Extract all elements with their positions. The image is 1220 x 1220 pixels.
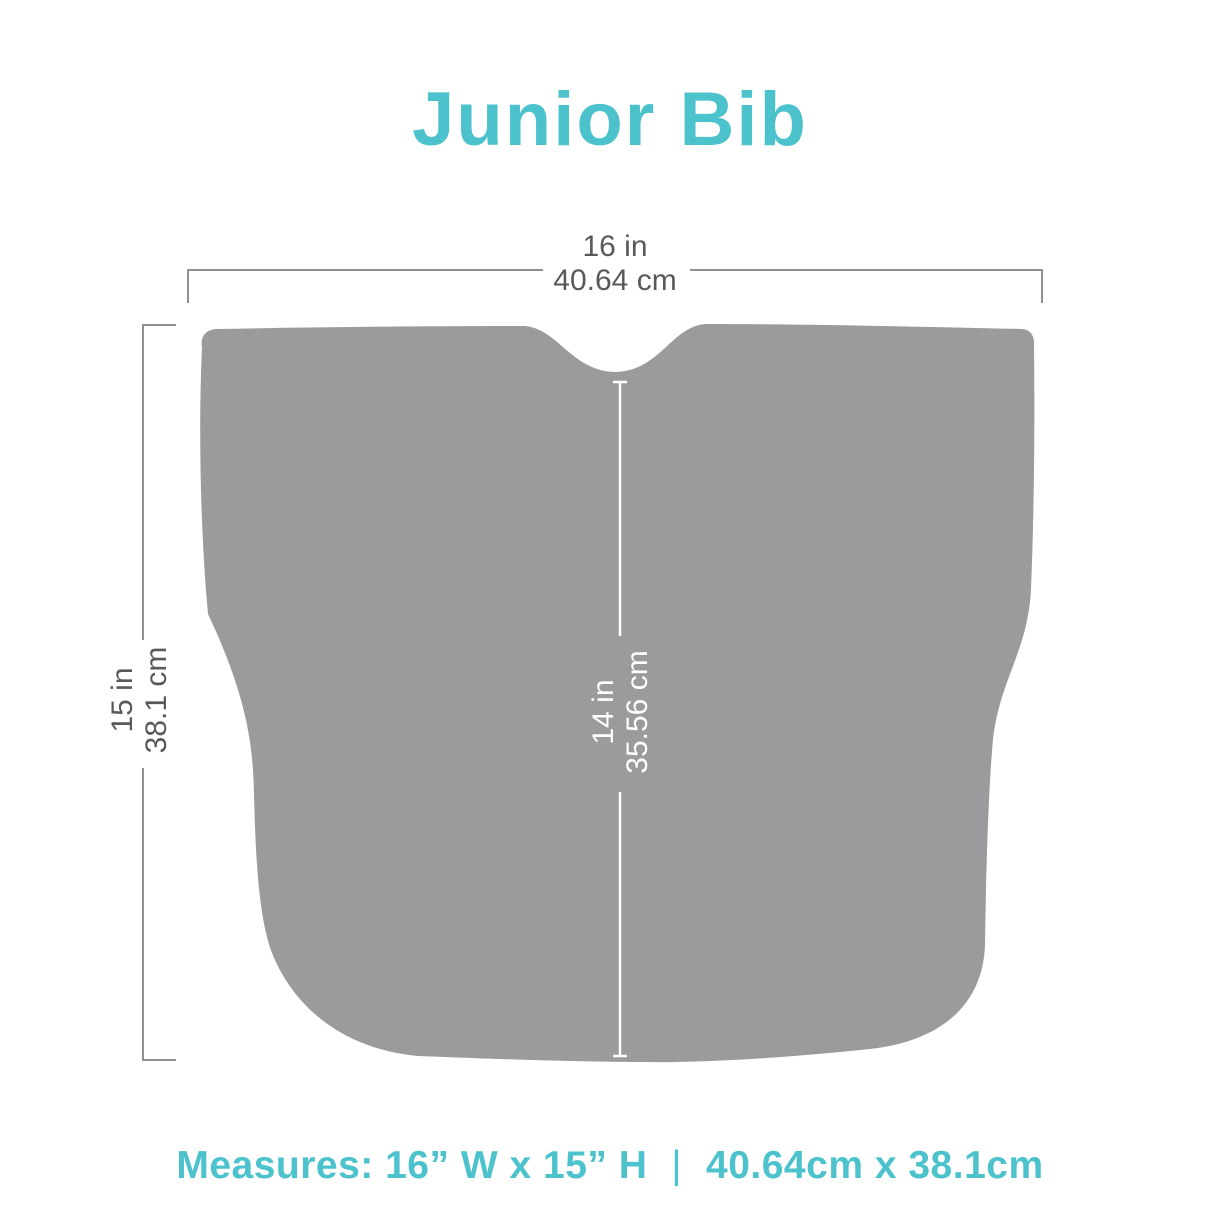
height-dimension-label: 15 in 38.1 cm	[106, 647, 174, 754]
bib-diagram	[0, 0, 1220, 1220]
inner-inches: 14 in	[587, 650, 621, 773]
inner-dimension-label: 14 in 35.56 cm	[587, 650, 655, 773]
measures-summary: Measures: 16” W x 15” H | 40.64cm x 38.1…	[0, 1144, 1220, 1188]
measures-imperial: Measures: 16” W x 15” H	[176, 1144, 647, 1188]
width-centimeters: 40.64 cm	[553, 264, 676, 298]
measures-separator: |	[671, 1144, 682, 1188]
inner-centimeters: 35.56 cm	[621, 650, 655, 773]
height-centimeters: 38.1 cm	[140, 647, 174, 754]
product-dimension-diagram: Junior Bib 16 in 40.64 cm 15 in 38.1 cm …	[0, 0, 1220, 1220]
width-inches: 16 in	[553, 230, 676, 264]
measures-metric: 40.64cm x 38.1cm	[706, 1144, 1044, 1188]
height-inches: 15 in	[106, 647, 140, 754]
width-dimension-label: 16 in 40.64 cm	[553, 230, 676, 298]
